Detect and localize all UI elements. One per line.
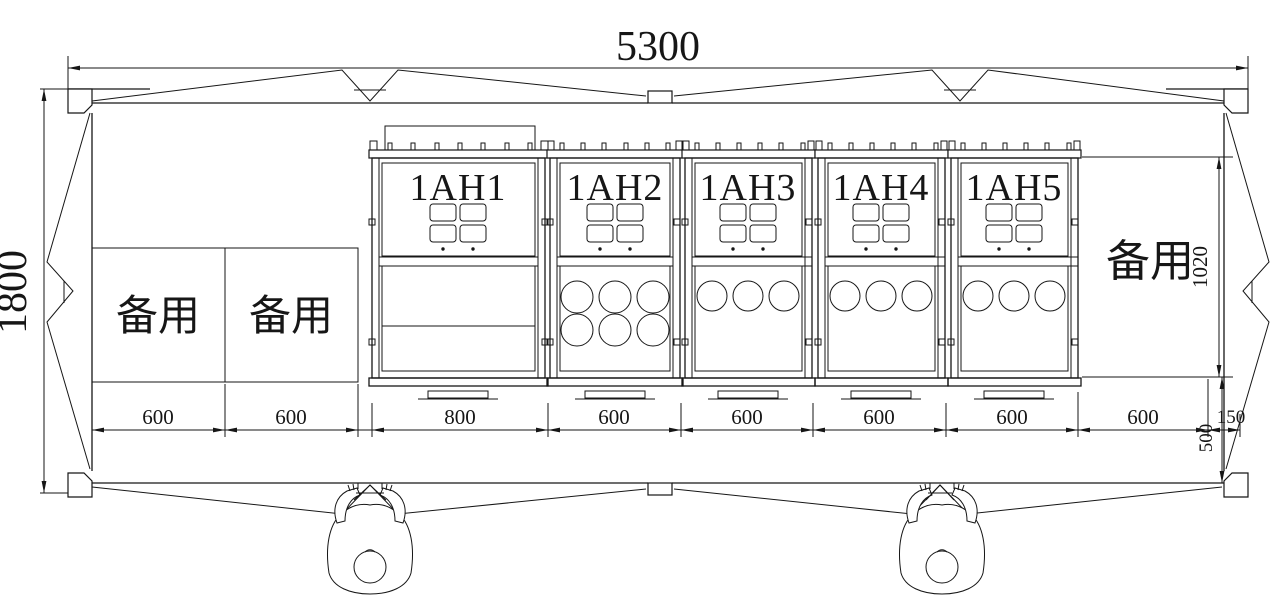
- cabinet-1ah2-studs: [548, 141, 682, 150]
- cabinet-1ah3-studs: [683, 141, 814, 150]
- spare-left-1-label: 备用: [116, 291, 200, 340]
- cabinet-1ah1: 1AH1: [369, 126, 548, 399]
- dimension-row-bottom: 600 600 800 600 600 600 600 600 150: [92, 379, 1245, 437]
- dim-bottom-1: 600: [275, 405, 307, 429]
- dim-bottom-8: 150: [1217, 407, 1246, 428]
- dimension-right-side: 1020 500: [1082, 157, 1233, 483]
- cabinet-1ah4-studs: [816, 141, 947, 150]
- top-wall-louver-left: [92, 70, 646, 101]
- dim-bottom-4: 600: [731, 405, 763, 429]
- cabinet-1ah1-meters: [430, 204, 486, 250]
- cabinet-1ah2-vent-holes: [561, 281, 669, 346]
- cabinet-1ah4: 1AH4: [815, 141, 948, 399]
- floor-plan-page: 5300 1800: [0, 0, 1280, 596]
- dim-overall-depth-label: 1800: [0, 250, 36, 334]
- cabinet-1ah4-meters: [853, 204, 909, 250]
- cabinet-1ah4-hinges: [815, 219, 945, 345]
- dim-bottom-3: 600: [598, 405, 630, 429]
- corner-post-bottom-right: [1224, 473, 1248, 497]
- cabinet-1ah1-duct: [385, 126, 535, 150]
- cabinet-1ah3-label: 1AH3: [700, 167, 797, 209]
- top-wall-louver-right: [674, 70, 1224, 101]
- corner-post-top-right: [1224, 89, 1248, 113]
- cabinet-1ah5-label: 1AH5: [966, 167, 1063, 209]
- cabinet-1ah3-hinges: [682, 219, 812, 345]
- corner-post-top-left: [68, 89, 92, 113]
- cabinet-1ah2-meters: [587, 204, 643, 250]
- left-wall-louver: [47, 113, 90, 469]
- dim-bottom-5: 600: [863, 405, 895, 429]
- cabinet-1ah3-vent-holes: [697, 281, 799, 311]
- cabinet-1ah5-meters: [986, 204, 1042, 250]
- operator-head: [926, 551, 958, 583]
- cabinet-1ah5: 1AH5: [948, 141, 1081, 399]
- enclosure-wall-outline: [47, 70, 1269, 514]
- dim-bottom-2: 800: [444, 405, 476, 429]
- cabinet-1ah3: 1AH3: [682, 141, 815, 399]
- spare-left-2-label: 备用: [249, 291, 333, 340]
- dim-bottom-6: 600: [996, 405, 1028, 429]
- spare-right-label: 备用: [1106, 236, 1194, 287]
- bottom-wall-mid-column: [648, 483, 672, 495]
- dim-bottom-0: 600: [142, 405, 174, 429]
- dim-cabinet-height: 1020: [1188, 246, 1212, 288]
- dim-overall-width-label: 5300: [616, 24, 700, 70]
- operator-figure-right: [900, 483, 985, 594]
- cabinet-1ah1-studs: [370, 141, 548, 150]
- cabinet-1ah1-label: 1AH1: [410, 167, 507, 209]
- cabinet-1ah2-label: 1AH2: [567, 167, 664, 209]
- cabinet-1ah5-hinges: [948, 219, 1078, 345]
- spare-area-left: 备用 备用: [92, 248, 358, 382]
- operator-figure-left: [328, 483, 413, 594]
- cabinet-1ah4-vent-holes: [830, 281, 932, 311]
- cabinet-1ah5-studs: [949, 141, 1080, 150]
- operator-head: [354, 551, 386, 583]
- floor-plan-drawing: 5300 1800: [0, 0, 1280, 596]
- cabinet-1ah4-label: 1AH4: [833, 167, 930, 209]
- dim-bottom-7: 600: [1127, 405, 1159, 429]
- cabinet-1ah2: 1AH2: [547, 141, 683, 399]
- top-wall-mid-column: [648, 91, 672, 103]
- cabinet-1ah5-vent-holes: [963, 281, 1065, 311]
- cabinet-1ah3-meters: [720, 204, 776, 250]
- dimension-overall-depth: 1800: [0, 89, 70, 493]
- dim-front-clearance: 500: [1196, 424, 1217, 453]
- corner-post-bottom-left: [68, 473, 92, 497]
